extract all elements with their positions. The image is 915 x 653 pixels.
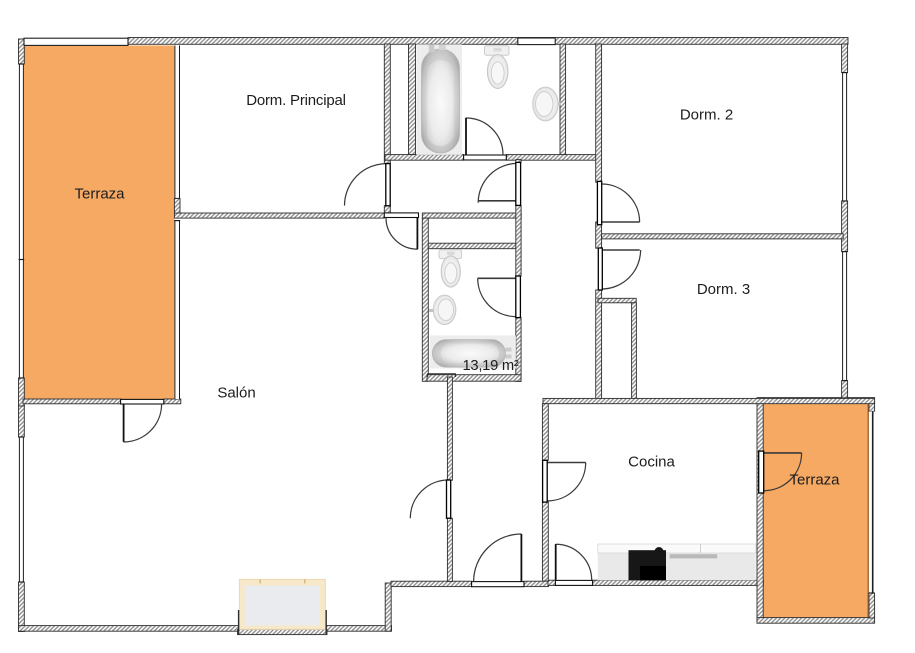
svg-text:Salón: Salón	[217, 384, 255, 401]
svg-text:Dorm. 2: Dorm. 2	[680, 106, 733, 123]
svg-text:Cocina: Cocina	[628, 453, 675, 470]
svg-text:Dorm. 3: Dorm. 3	[697, 281, 750, 298]
svg-text:13,19 m²: 13,19 m²	[463, 358, 519, 374]
svg-text:Terraza: Terraza	[74, 186, 125, 203]
svg-text:Terraza: Terraza	[789, 471, 840, 488]
svg-text:Dorm. Principal: Dorm. Principal	[246, 92, 346, 109]
